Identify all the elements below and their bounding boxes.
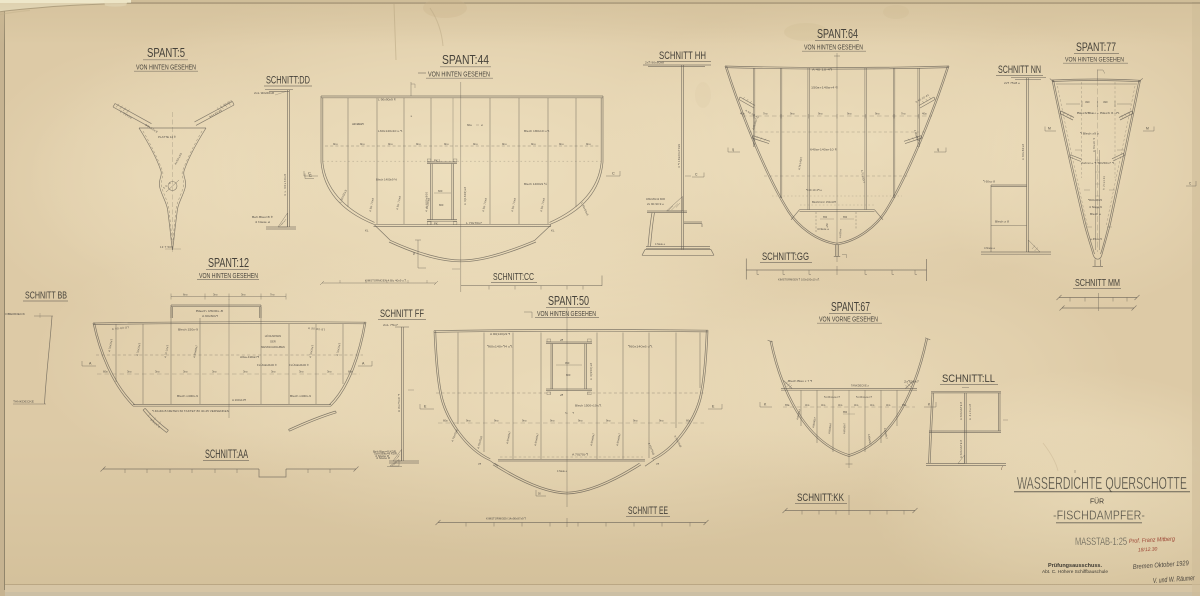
svg-text:Blech 150x-9: Blech 150x-9 <box>178 328 198 332</box>
svg-text:650: 650 <box>823 216 828 219</box>
svg-text:⌀: ⌀ <box>481 123 483 127</box>
svg-text:MASSTAB-1:25: MASSTAB-1:25 <box>1075 536 1127 548</box>
svg-text:2xL 75x7: 2xL 75x7 <box>383 323 399 327</box>
svg-text:V⅂: V⅂ <box>478 462 482 466</box>
svg-text:9no: 9no <box>578 419 583 423</box>
svg-text:9no: 9no <box>659 419 664 423</box>
svg-text:VON HINTEN GESEHEN: VON HINTEN GESEHEN <box>804 45 863 52</box>
svg-text:Beh.Blau=8 KDR: Beh.Blau=8 KDR <box>373 450 396 454</box>
svg-text:PK 2: PK 2 <box>434 159 441 163</box>
svg-text:60a: 60a <box>103 370 108 374</box>
svg-text:7no: 7no <box>270 292 275 296</box>
svg-text:A 160x10⅂: A 160x10⅂ <box>232 398 247 402</box>
svg-text:SPANT:5: SPANT:5 <box>147 45 185 60</box>
svg-text:A 4(950)x8: A 4(950)x8 <box>589 363 593 381</box>
svg-text:490: 490 <box>1085 100 1090 104</box>
svg-text:SCHNITT EE: SCHNITT EE <box>628 505 668 517</box>
svg-text:VON HINTEN GESEHEN: VON HINTEN GESEHEN <box>1065 57 1124 64</box>
svg-text:SCHNITT NN: SCHNITT NN <box>998 64 1041 76</box>
svg-text:Blech ⌀: Blech ⌀ <box>1090 213 1102 216</box>
svg-text:9no: 9no <box>522 419 527 423</box>
svg-text:FLÜGELRAD ⅊: FLÜGELRAD ⅊ <box>257 363 277 367</box>
svg-text:⅂60x140x6 u⅂.: ⅂60x140x6 u⅂. <box>628 345 653 349</box>
svg-text:Blech 1400x9 ⅍: Blech 1400x9 ⅍ <box>524 182 547 186</box>
svg-text:A 4(1600)x8: A 4(1600)x8 <box>463 187 467 206</box>
svg-text:600: 600 <box>438 189 443 193</box>
svg-text:9no: 9no <box>333 142 338 146</box>
svg-text:2xL 90x60x8: 2xL 90x60x8 <box>254 91 274 95</box>
svg-text:800: 800 <box>439 203 444 207</box>
svg-text:A SCHULTE 8: A SCHULTE 8 <box>959 439 963 458</box>
svg-text:9no: 9no <box>847 112 852 116</box>
svg-text:A6a+190a=⅂: A6a+190a=⅂ <box>240 355 260 359</box>
svg-text:A 60x60x8: A 60x60x8 <box>1021 144 1025 161</box>
svg-text:FÜR: FÜR <box>1090 497 1105 506</box>
svg-text:9no: 9no <box>388 142 393 146</box>
svg-text:VON HINTEN GESEHEN: VON HINTEN GESEHEN <box>428 70 490 79</box>
svg-text:9no: 9no <box>790 112 795 116</box>
svg-text:Blech 1500x-8: Blech 1500x-8 <box>196 309 223 313</box>
svg-text:9no: 9no <box>818 112 823 116</box>
svg-text:Blech 1400x9 ⅍: Blech 1400x9 ⅍ <box>376 178 397 182</box>
svg-text:⅂mm⁄5mm+A⌀ 3 ⅂: ⅂mm⁄5mm+A⌀ 3 ⅂ <box>856 395 872 399</box>
svg-text:FLÜGELRAD ⅊: FLÜGELRAD ⅊ <box>289 363 309 367</box>
svg-text:3no: 3no <box>821 403 826 407</box>
svg-text:Blech Blau x 7 ⅂: Blech Blau x 7 ⅂ <box>788 379 813 383</box>
svg-text:9no: 9no <box>502 142 507 146</box>
svg-text:SPANT:77: SPANT:77 <box>1076 40 1116 54</box>
svg-text:9no: 9no <box>586 142 591 146</box>
svg-text:KL: KL <box>551 229 555 233</box>
svg-text:3no: 3no <box>854 403 859 407</box>
svg-text:TANKDECKE ⌀: TANKDECKE ⌀ <box>851 384 869 388</box>
svg-text:⅂mm⁄5mm+A⌀ 3 ⅂: ⅂mm⁄5mm+A⌀ 3 ⅂ <box>824 395 840 399</box>
svg-text:65a: 65a <box>902 403 907 407</box>
svg-text:A Blech 9: A Blech 9 <box>1093 137 1096 152</box>
svg-text:⌀⅂: ⌀⅂ <box>560 393 564 397</box>
svg-text:6no: 6no <box>183 292 188 296</box>
svg-text:MESSSCHRAUBEN: MESSSCHRAUBEN <box>261 345 285 349</box>
svg-text:40a: 40a <box>740 112 745 116</box>
svg-text:13 T 50⅊: 13 T 50⅊ <box>160 245 173 249</box>
svg-text:9no: 9no <box>444 142 449 146</box>
svg-text:A SCHULTE 8: A SCHULTE 8 <box>959 401 963 420</box>
svg-text:SCHNITT BB: SCHNITT BB <box>25 290 67 302</box>
svg-text:PLATTE 12 ⅊: PLATTE 12 ⅊ <box>158 135 176 139</box>
svg-text:⌀⅂: ⌀⅂ <box>560 338 564 342</box>
svg-text:SCHNITT HH: SCHNITT HH <box>659 50 706 62</box>
svg-text:Blech⁄Blau + Blech 6 u⅂.: Blech⁄Blau + Blech 6 u⅂. <box>1077 111 1120 115</box>
svg-text:9no: 9no <box>559 142 564 146</box>
svg-text:SPANT:12: SPANT:12 <box>208 256 249 270</box>
svg-text:40a: 40a <box>922 112 927 116</box>
svg-text:9no: 9no <box>494 419 499 423</box>
svg-text:4 Niete ⌀: 4 Niete ⌀ <box>655 243 666 246</box>
svg-text:9no: 9no <box>416 142 421 146</box>
svg-text:3no: 3no <box>886 403 891 407</box>
svg-text:⌀ 45x⌀ 5: ⌀ 45x⌀ 5 <box>1090 238 1103 241</box>
svg-text:WASSERDICHTE QUERSCHOTTE: WASSERDICHTE QUERSCHOTTE <box>1017 473 1187 493</box>
svg-text:9no: 9no <box>531 142 536 146</box>
svg-text:Blech 1500+10 u⅂.: Blech 1500+10 u⅂. <box>575 404 602 408</box>
svg-text:TANKDECKE: TANKDECKE <box>13 400 34 404</box>
svg-text:DER: DER <box>270 340 276 344</box>
svg-text:9no: 9no <box>473 142 478 146</box>
svg-text:Blech x400x-9: Blech x400x-9 <box>177 394 198 398</box>
svg-text:PK: PK <box>434 222 438 226</box>
svg-text:9no: 9no <box>550 419 555 423</box>
svg-text:⅂40x40x5: ⅂40x40x5 <box>1088 199 1103 202</box>
svg-text:7no: 7no <box>763 112 768 116</box>
svg-text:640a+140a+10 ⅊: 640a+140a+10 ⅊ <box>810 148 837 152</box>
svg-text:2x⁄mm+ ⅂ 50x50x7 ⅂: 2x⁄mm+ ⅂ 50x50x7 ⅂ <box>1081 161 1115 165</box>
svg-text:Abt. C. Höhere Schiffbauschule: Abt. C. Höhere Schiffbauschule <box>1042 569 1109 574</box>
svg-text:⅂ 40·10·4⅂ ⌀: ⅂ 40·10·4⅂ ⌀ <box>806 188 822 192</box>
svg-text:Blech 180x10 u.⅂.: Blech 180x10 u.⅂. <box>524 129 550 133</box>
svg-text:A 2x⌀x45: A 2x⌀x45 <box>1103 175 1107 190</box>
svg-text:HÖCHSPANN: HÖCHSPANN <box>265 334 282 338</box>
svg-text:490: 490 <box>1103 100 1108 104</box>
svg-text:150a+140a+4 ⅊: 150a+140a+4 ⅊ <box>811 86 838 90</box>
svg-text:C: C <box>309 173 312 178</box>
svg-text:4 L 60x60x8: 4 L 60x60x8 <box>283 174 287 196</box>
svg-text:⅂ 60x⌀ 8: ⅂ 60x⌀ 8 <box>983 180 996 184</box>
svg-text:9no: 9no <box>606 419 611 423</box>
svg-text:4 Niete ⌀: 4 Niete ⌀ <box>255 220 270 224</box>
svg-text:4 Niete 8: 4 Niete 8 <box>375 454 390 458</box>
svg-text:-FISCHDAMPFER-: -FISCHDAMPFER- <box>1053 509 1145 523</box>
svg-text:Blech x400x-9: Blech x400x-9 <box>290 394 311 398</box>
svg-text:VON VORNE GESEHEN: VON VORNE GESEHEN <box>819 317 878 324</box>
svg-text:3no: 3no <box>127 370 132 374</box>
svg-text:M: M <box>1146 127 1149 131</box>
svg-text:3no: 3no <box>155 370 160 374</box>
svg-text:800: 800 <box>566 373 571 377</box>
svg-text:3no: 3no <box>838 403 843 407</box>
svg-text:Beh.Blau=8 ⅊: Beh.Blau=8 ⅊ <box>252 215 273 219</box>
svg-text:2x⅂50x7: 2x⅂50x7 <box>904 380 920 384</box>
svg-text:SPANT:64: SPANT:64 <box>817 27 858 41</box>
svg-text:KIMSTÜRMGEN ⅂ 100x100x10 u⅂.: KIMSTÜRMGEN ⅂ 100x100x10 u⅂. <box>778 278 820 282</box>
svg-text:3no: 3no <box>241 292 246 296</box>
svg-text:4 Niete ⌀: 4 Niete ⌀ <box>557 470 568 473</box>
svg-text:A 90(140)x9 ⅂: A 90(140)x9 ⅂ <box>490 332 511 336</box>
svg-text:SCHNITT:GG: SCHNITT:GG <box>762 251 809 263</box>
svg-text:2x⅂ 75x8 ⌀: 2x⅂ 75x8 ⌀ <box>1004 81 1021 85</box>
svg-text:850: 850 <box>843 411 848 414</box>
svg-text:KIMSTÜRMGEN 4.Blc 40x9 u.⅂.: KIMSTÜRMGEN 4.Blc 40x9 u.⅂. <box>365 279 407 283</box>
svg-text:4 ⅂ 18x60x70x9: 4 ⅂ 18x60x70x9 <box>677 144 681 168</box>
svg-text:KIMSTÜRMGEN 14x90x97x9 ⅂: KIMSTÜRMGEN 14x90x97x9 ⅂ <box>486 517 527 521</box>
svg-text:650: 650 <box>843 216 848 219</box>
svg-text:4 Niete 6: 4 Niete 6 <box>1089 206 1103 209</box>
svg-text:Blech⁄min= 150x10⅂: Blech⁄min= 150x10⅂ <box>812 200 837 204</box>
svg-text:60a: 60a <box>443 419 448 423</box>
svg-text:950: 950 <box>565 361 570 365</box>
svg-text:SCHNITT:LL: SCHNITT:LL <box>942 373 995 385</box>
svg-text:q: q <box>937 148 939 152</box>
svg-text:V⅂: V⅂ <box>656 462 660 466</box>
svg-text:⅂ Blech x9 ⌀: ⅂ Blech x9 ⌀ <box>1080 132 1100 136</box>
svg-text:65a: 65a <box>785 403 790 407</box>
svg-text:C: C <box>612 172 615 176</box>
svg-text:SPANT:44: SPANT:44 <box>442 52 489 67</box>
svg-text:SPANT:50: SPANT:50 <box>548 294 589 308</box>
svg-text:M: M <box>1048 127 1051 131</box>
svg-text:SCHNITT:AA: SCHNITT:AA <box>205 447 248 461</box>
svg-text:180x180x12 KDR: 180x180x12 KDR <box>646 197 665 201</box>
svg-text:SCHNITT MM: SCHNITT MM <box>1075 277 1120 289</box>
svg-text:A 90x60x⅂: A 90x60x⅂ <box>202 314 219 318</box>
svg-text:⅂60x140+⅂4 u⅂.: ⅂60x140+⅂4 u⅂. <box>487 345 513 349</box>
svg-text:SCHNITT:DD: SCHNITT:DD <box>266 75 310 87</box>
svg-text:q: q <box>732 148 734 152</box>
svg-text:2x 90·90·9 ⌀: 2x 90·90·9 ⌀ <box>647 202 664 206</box>
svg-text:A 65x65x7: A 65x65x7 <box>843 422 846 434</box>
svg-text:3no: 3no <box>271 370 276 374</box>
svg-text:3no: 3no <box>243 370 248 374</box>
svg-text:L60x140x10 u.⅂.: L60x140x10 u.⅂. <box>378 129 403 133</box>
svg-text:L 70x70x7: L 70x70x7 <box>466 221 482 225</box>
svg-text:7no: 7no <box>901 112 906 116</box>
svg-text:VON HINTEN GESEHEN: VON HINTEN GESEHEN <box>136 63 196 72</box>
svg-text:60a: 60a <box>467 123 472 127</box>
svg-text:⅂ 40x40x5 NIETEN 60 TAKTET 80: ⅂ 40x40x5 NIETEN 60 TAKTET 80 40-45 VERS… <box>152 409 229 413</box>
svg-text:A 8x75x8 ⅂: A 8x75x8 ⅂ <box>397 394 401 412</box>
svg-text:L40 = 120x4 x ⅂.: L40 = 120x4 x ⅂. <box>352 122 364 126</box>
svg-text:L 90x90x9 ⅊: L 90x90x9 ⅊ <box>378 98 396 102</box>
svg-text:Blech ⌀ 8: Blech ⌀ 8 <box>995 220 1010 224</box>
svg-text:2x⅂ 90x60x8: 2x⅂ 90x60x8 <box>645 61 665 65</box>
svg-text:⌀50: ⌀50 <box>826 223 829 228</box>
svg-text:3no: 3no <box>183 370 188 374</box>
svg-text:3no: 3no <box>870 403 875 407</box>
svg-text:9no: 9no <box>633 419 638 423</box>
svg-text:A 635x⌀: A 635x⌀ <box>839 228 842 238</box>
svg-text:A 4x0⌀x8: A 4x0⌀x8 <box>968 403 972 420</box>
svg-text:SCHNITT:KK: SCHNITT:KK <box>797 492 844 504</box>
svg-text:9no: 9no <box>466 419 471 423</box>
svg-text:OBERDECK: OBERDECK <box>5 312 25 316</box>
svg-text:3no: 3no <box>327 370 332 374</box>
svg-text:3no: 3no <box>212 370 217 374</box>
svg-text:4 Niete ⌀: 4 Niete ⌀ <box>984 247 996 250</box>
svg-text:A 70(70)-⅂: A 70(70)-⅂ <box>572 453 589 457</box>
svg-text:A 40·10·4⅂: A 40·10·4⅂ <box>812 68 833 72</box>
svg-text:VON HINTEN GESEHEN: VON HINTEN GESEHEN <box>537 311 596 318</box>
svg-text:3no: 3no <box>299 370 304 374</box>
svg-text:9no: 9no <box>360 142 365 146</box>
svg-text:60a: 60a <box>348 370 353 374</box>
svg-text:SCHNITT FF: SCHNITT FF <box>380 308 424 320</box>
svg-text:18/12.30: 18/12.30 <box>1138 546 1158 553</box>
svg-text:3no: 3no <box>213 292 218 296</box>
svg-text:SCHNITT:CC: SCHNITT:CC <box>493 271 534 283</box>
svg-text:SPANT:67: SPANT:67 <box>831 300 870 314</box>
svg-text:9no: 9no <box>875 112 880 116</box>
svg-text:4 Niete ⌀: 4 Niete ⌀ <box>817 228 830 231</box>
svg-text:60a: 60a <box>686 419 691 423</box>
svg-text:3no: 3no <box>805 403 810 407</box>
svg-text:VON HINTEN GESEHEN: VON HINTEN GESEHEN <box>199 273 258 280</box>
svg-text:KL: KL <box>365 229 369 233</box>
